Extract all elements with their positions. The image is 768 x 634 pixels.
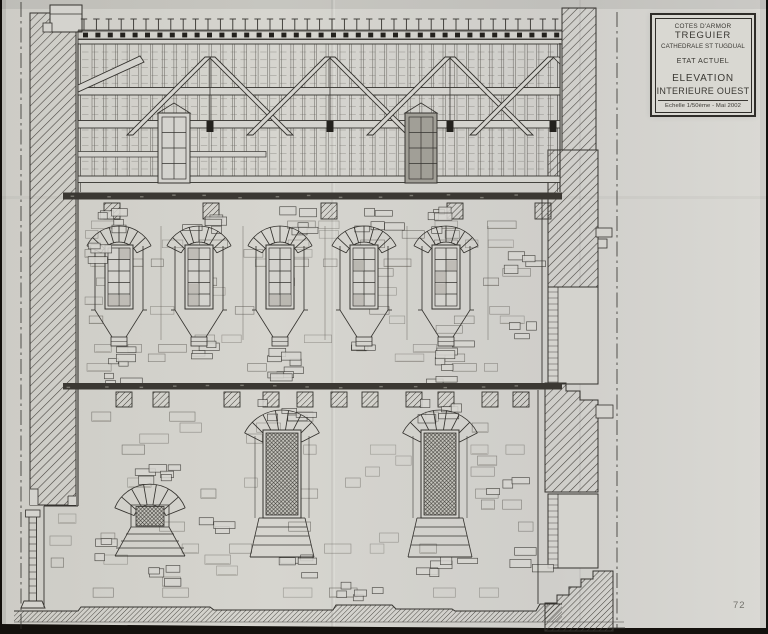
title-city: TREGUIER (656, 31, 751, 42)
scanned-elevation-photo: COTES D'ARMOR TREGUIER CATHEDRALE ST TUG… (0, 0, 768, 634)
scale-and-date: Echelle 1/50ème - Mai 2002 (658, 100, 747, 112)
title-block-inner: COTES D'ARMOR TREGUIER CATHEDRALE ST TUG… (655, 18, 752, 113)
title-block: COTES D'ARMOR TREGUIER CATHEDRALE ST TUG… (650, 13, 756, 117)
title-state: ETAT ACTUEL (656, 57, 751, 65)
title-building: CATHEDRALE ST TUGDUAL (656, 43, 751, 50)
drawing-title-line2: INTERIEURE OUEST (656, 86, 751, 96)
title-region: COTES D'ARMOR (656, 23, 751, 30)
drawing-title-line1: ELEVATION (656, 73, 751, 85)
page-number: 72 (733, 600, 746, 611)
